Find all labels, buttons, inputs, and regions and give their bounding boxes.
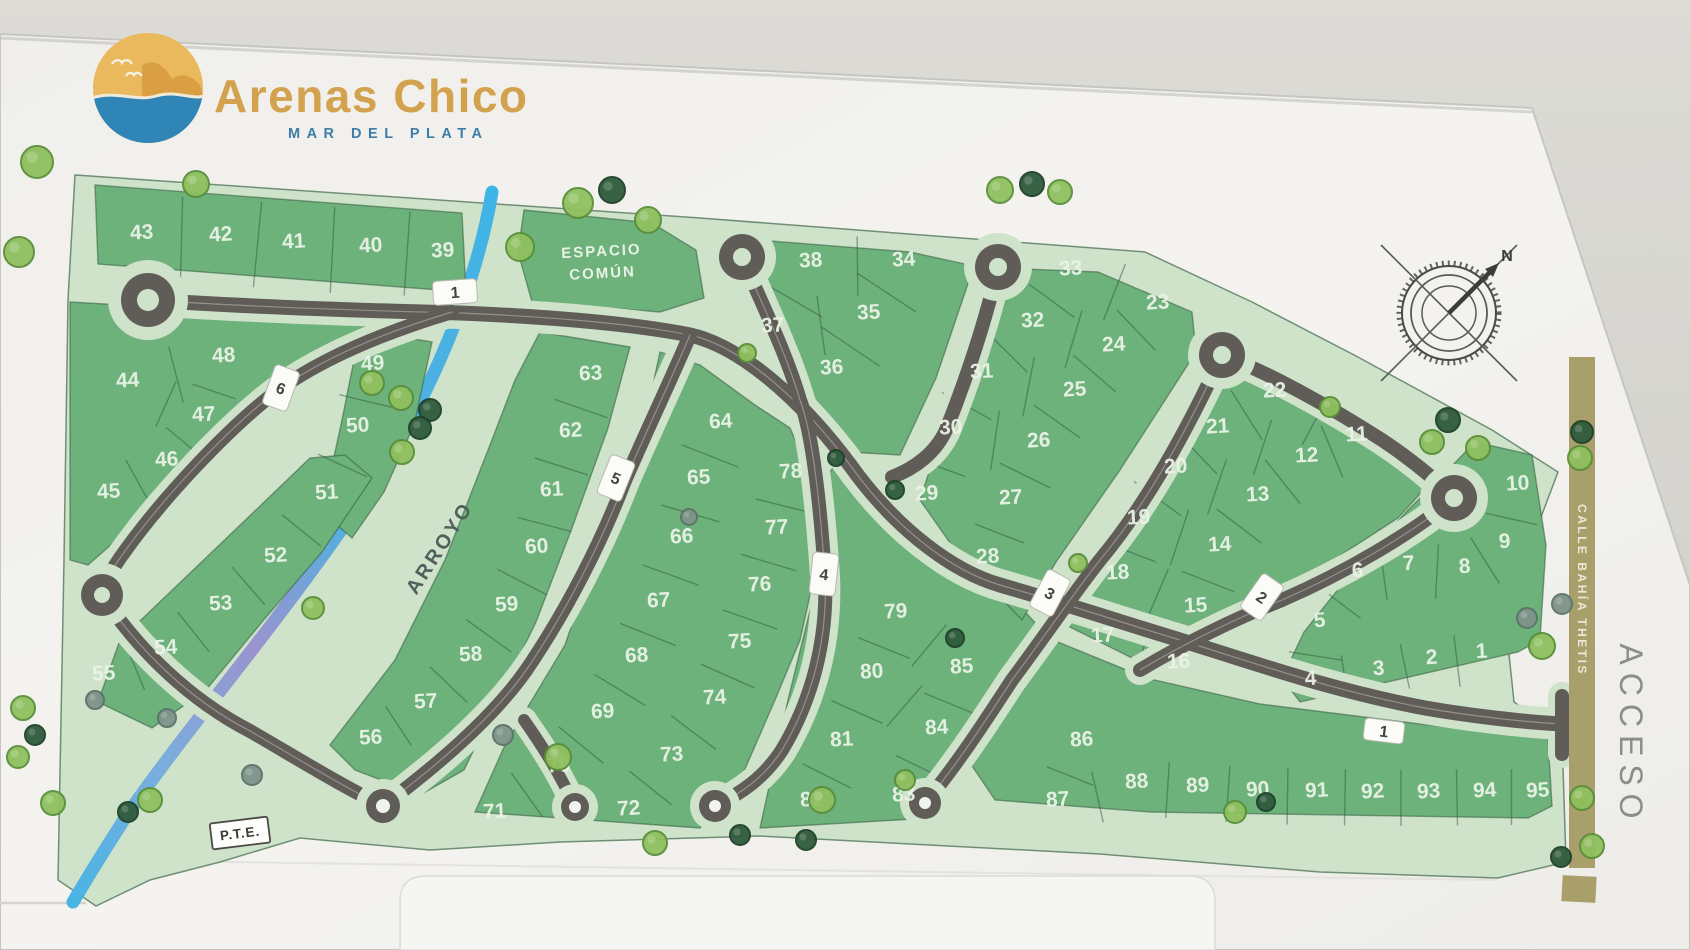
tree-icon — [1571, 421, 1593, 443]
tree-icon — [1529, 633, 1555, 659]
tree-highlight — [11, 750, 19, 758]
tree-highlight — [1440, 412, 1448, 420]
tree-icon — [1224, 801, 1246, 823]
lot-number: 45 — [96, 479, 121, 503]
lot-number: 63 — [578, 361, 603, 385]
lot-number: 34 — [891, 247, 916, 271]
tree-highlight — [1260, 796, 1266, 802]
tree-icon — [946, 629, 964, 647]
tree-icon — [86, 691, 104, 709]
tree-icon — [1580, 834, 1604, 858]
tree-highlight — [142, 792, 150, 800]
lot-number: 59 — [494, 592, 519, 616]
cul-de-sac-island — [137, 289, 159, 311]
lot-number: 65 — [686, 465, 711, 489]
lot-number: 81 — [829, 727, 854, 751]
tree-highlight — [161, 712, 167, 718]
tree-icon — [390, 440, 414, 464]
lot-number: 15 — [1183, 593, 1208, 617]
lot-number: 89 — [1185, 773, 1210, 797]
lot-number: 32 — [1020, 308, 1045, 332]
tree-highlight — [800, 834, 807, 841]
tree-highlight — [29, 729, 36, 736]
tree-icon — [796, 830, 816, 850]
tree-highlight — [647, 835, 655, 843]
tree-highlight — [1521, 612, 1528, 619]
lot-number: 29 — [914, 481, 939, 505]
tree-icon — [1320, 397, 1340, 417]
cul-de-sac-island — [569, 801, 581, 813]
tree-highlight — [1228, 805, 1236, 813]
tree-icon — [681, 509, 697, 525]
compass-rose: N — [1381, 245, 1517, 381]
tree-highlight — [394, 444, 402, 452]
north-letter: N — [1501, 248, 1513, 265]
road-sign-number: 4 — [819, 567, 830, 585]
tree-highlight — [1572, 450, 1580, 458]
tree-highlight — [511, 238, 521, 248]
lot-number: 40 — [358, 233, 383, 257]
lot-number: 72 — [616, 796, 641, 820]
lot-number: 86 — [1069, 727, 1094, 751]
lot-number: 71 — [482, 799, 507, 823]
lot-number: 67 — [646, 588, 671, 612]
lot-number: 44 — [115, 368, 140, 392]
tree-icon — [1257, 793, 1275, 811]
tree-icon — [1551, 847, 1571, 867]
tree-highlight — [393, 390, 401, 398]
tree-highlight — [568, 193, 579, 204]
tree-highlight — [949, 632, 955, 638]
lot-number: 48 — [211, 343, 236, 367]
calle-label: CALLE BAHÍA THETIS — [1575, 504, 1590, 676]
lot-number: 26 — [1026, 428, 1051, 452]
lot-number: 20 — [1163, 454, 1188, 478]
lot-number: 23 — [1145, 290, 1170, 314]
lot-number: 52 — [263, 543, 288, 567]
tree-icon — [360, 371, 384, 395]
cul-de-sac-island — [1213, 346, 1231, 364]
tree-highlight — [89, 694, 95, 700]
calle-stub — [1561, 875, 1596, 903]
svg-text:COMÚN: COMÚN — [569, 262, 637, 283]
lot-number: 94 — [1472, 778, 1497, 802]
tree-icon — [895, 770, 915, 790]
lot-number: 41 — [281, 229, 306, 253]
road-sign: 1 — [1363, 718, 1405, 745]
tree-icon — [987, 177, 1013, 203]
lot-number: 16 — [1166, 649, 1191, 673]
cul-de-sac-island — [733, 248, 751, 266]
road-sign: 1 — [432, 278, 478, 305]
tree-icon — [599, 177, 625, 203]
lot-number: 35 — [856, 300, 881, 324]
lot-number: 74 — [702, 685, 727, 709]
lot-number: 53 — [208, 591, 233, 615]
lot-number: 1 — [1475, 640, 1488, 664]
tree-highlight — [423, 403, 431, 411]
tree-icon — [563, 188, 593, 218]
tree-highlight — [604, 182, 613, 191]
tree-icon — [242, 765, 262, 785]
tree-icon — [1436, 408, 1460, 432]
tree-highlight — [899, 774, 906, 781]
lot-number: 51 — [314, 480, 339, 504]
tree-icon — [1570, 786, 1594, 810]
lot-number: 47 — [191, 402, 216, 426]
tree-highlight — [684, 512, 690, 518]
lot-number: 92 — [1360, 779, 1385, 803]
tree-icon — [1020, 172, 1044, 196]
tree-highlight — [640, 212, 649, 221]
tree-highlight — [1555, 851, 1562, 858]
lot-number: 75 — [727, 629, 752, 653]
lot-number: 95 — [1525, 778, 1550, 802]
tree-highlight — [9, 242, 20, 253]
tree-icon — [7, 746, 29, 768]
cul-de-sac-island — [376, 799, 390, 813]
tree-highlight — [814, 792, 823, 801]
lot-number: 84 — [924, 715, 949, 739]
lot-number: 87 — [1045, 787, 1070, 811]
tree-highlight — [1584, 838, 1592, 846]
cul-de-sac-island — [709, 800, 721, 812]
tree-highlight — [188, 176, 197, 185]
lot-number: 46 — [154, 447, 179, 471]
tree-icon — [302, 597, 324, 619]
lot-number: 88 — [1124, 769, 1149, 793]
lot-number: 42 — [208, 222, 233, 246]
tree-icon — [41, 791, 65, 815]
lot-number: 11 — [1345, 422, 1369, 446]
lot-number: 73 — [659, 742, 684, 766]
tree-icon — [506, 233, 534, 261]
lot-number: 57 — [413, 689, 438, 713]
lot-number: 12 — [1294, 443, 1319, 467]
lot-number: 18 — [1105, 560, 1130, 584]
tree-highlight — [550, 749, 559, 758]
cul-de-sac-island — [94, 587, 110, 603]
lot-line — [857, 237, 858, 297]
tree-icon — [730, 825, 750, 845]
tree-highlight — [1052, 184, 1060, 192]
lot-number: 93 — [1416, 779, 1441, 803]
cul-de-sac-island — [1445, 489, 1463, 507]
road-sign-number: 1 — [450, 285, 460, 303]
tree-icon — [409, 417, 431, 439]
tree-highlight — [413, 421, 421, 429]
lot-number: 19 — [1126, 505, 1151, 529]
tree-highlight — [1534, 638, 1543, 647]
lot-number: 7 — [1402, 552, 1415, 576]
tree-icon — [545, 744, 571, 770]
lot-number: 21 — [1205, 414, 1230, 438]
tree-highlight — [1424, 434, 1432, 442]
tree-icon — [738, 344, 756, 362]
tree-icon — [183, 171, 209, 197]
lot-number: 8 — [1458, 555, 1471, 579]
acceso-label: ACCESO — [1613, 643, 1649, 826]
lot-number: 2 — [1425, 646, 1438, 670]
lot-number: 79 — [883, 599, 908, 623]
tree-icon — [1420, 430, 1444, 454]
tree-highlight — [1556, 598, 1563, 605]
tree-highlight — [741, 347, 747, 353]
tree-highlight — [1024, 176, 1032, 184]
lot-number: 66 — [669, 524, 694, 548]
lot-line — [1287, 769, 1288, 825]
cul-de-sac-island — [989, 258, 1007, 276]
tree-highlight — [497, 729, 504, 736]
lot-number: 6 — [1351, 559, 1364, 583]
lot-number: 37 — [760, 313, 785, 337]
tree-highlight — [122, 806, 129, 813]
lot-number: 30 — [938, 415, 963, 439]
lot-number: 13 — [1245, 482, 1270, 506]
lot-number: 24 — [1101, 332, 1126, 356]
brand-title: Arenas Chico — [214, 70, 529, 122]
tree-icon — [25, 725, 45, 745]
lot-number: 27 — [998, 485, 1023, 509]
tree-icon — [21, 146, 53, 178]
tree-highlight — [306, 601, 314, 609]
lot-number: 69 — [590, 699, 615, 723]
tree-highlight — [992, 182, 1001, 191]
tree-icon — [158, 709, 176, 727]
lot-number: 58 — [458, 642, 483, 666]
lot-number: 55 — [91, 661, 116, 685]
lot-number: 60 — [524, 534, 549, 558]
tree-highlight — [364, 375, 372, 383]
tree-icon — [1552, 594, 1572, 614]
tree-highlight — [1072, 557, 1078, 563]
map-canvas: Arenas Chico MAR DEL PLATA CALLE BAHÍA T… — [0, 0, 1690, 950]
lot-number: 76 — [747, 572, 772, 596]
lot-number: 56 — [358, 725, 383, 749]
tree-icon — [389, 386, 413, 410]
lot-number: 36 — [819, 355, 844, 379]
lot-number: 85 — [949, 654, 974, 678]
lot-number: 80 — [859, 659, 884, 683]
tree-icon — [886, 481, 904, 499]
brand-subtitle: MAR DEL PLATA — [288, 126, 489, 142]
tree-highlight — [246, 769, 253, 776]
lot-number: 17 — [1090, 623, 1115, 647]
tree-icon — [11, 696, 35, 720]
lot-number: 38 — [798, 248, 823, 272]
tree-icon — [118, 802, 138, 822]
tree-icon — [1517, 608, 1537, 628]
tree-icon — [1048, 180, 1072, 204]
tree-icon — [1466, 436, 1490, 460]
tree-icon — [643, 831, 667, 855]
lot-number: 4 — [1304, 667, 1317, 691]
tree-icon — [1568, 446, 1592, 470]
tree-highlight — [15, 700, 23, 708]
lot-number: 43 — [129, 220, 154, 244]
tree-highlight — [1575, 425, 1583, 433]
lot-number: 9 — [1498, 530, 1511, 554]
lot-number: 54 — [153, 635, 178, 659]
tree-icon — [493, 725, 513, 745]
tree-icon — [828, 450, 844, 466]
tree-highlight — [889, 484, 895, 490]
lot-number: 3 — [1372, 657, 1385, 681]
lot-number: 68 — [624, 643, 649, 667]
lot-number: 91 — [1304, 778, 1329, 802]
tree-highlight — [1324, 401, 1331, 408]
lot-number: 22 — [1262, 378, 1287, 402]
tree-icon — [4, 237, 34, 267]
tree-icon — [1069, 554, 1087, 572]
lot-number: 14 — [1207, 532, 1232, 556]
lot-number: 28 — [975, 544, 1000, 568]
tree-highlight — [45, 795, 53, 803]
tree-highlight — [1470, 440, 1478, 448]
lot-number: 61 — [539, 477, 564, 501]
tree-icon — [138, 788, 162, 812]
tree-icon — [809, 787, 835, 813]
lot-number: 5 — [1313, 609, 1326, 633]
lot-number: 62 — [558, 418, 583, 442]
lot-number: 33 — [1058, 256, 1083, 280]
lot-number: 39 — [430, 238, 455, 262]
lot-number: 25 — [1062, 377, 1087, 401]
lot-number: 64 — [708, 409, 733, 433]
tree-highlight — [1574, 790, 1582, 798]
lot-number: 10 — [1505, 471, 1530, 495]
lot-number: 50 — [345, 413, 370, 437]
photo-of-lot-map: Arenas Chico MAR DEL PLATA CALLE BAHÍA T… — [0, 0, 1690, 950]
tree-icon — [635, 207, 661, 233]
lot-number: 78 — [778, 459, 803, 483]
lot-number: 31 — [969, 359, 994, 383]
road-sign: 4 — [809, 552, 839, 596]
lot-line — [1457, 770, 1458, 826]
board-tray — [400, 876, 1215, 950]
cul-de-sac-island — [919, 797, 931, 809]
lot-line — [1345, 770, 1346, 826]
lot-number: 77 — [764, 515, 789, 539]
tree-highlight — [831, 453, 837, 459]
tree-highlight — [27, 152, 38, 163]
tree-highlight — [734, 829, 741, 836]
